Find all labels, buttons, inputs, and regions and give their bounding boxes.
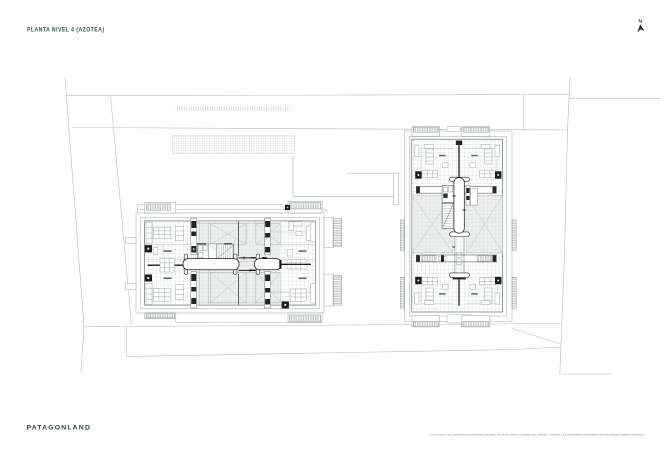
svg-text:PATAGONLAND: PATAGONLAND (27, 425, 92, 432)
svg-text:PLANTA NIVEL 4 (AZOTEA): PLANTA NIVEL 4 (AZOTEA) (27, 27, 105, 34)
svg-text:La informacion aqui presentada: La informacion aqui presentada es merame… (430, 432, 645, 436)
